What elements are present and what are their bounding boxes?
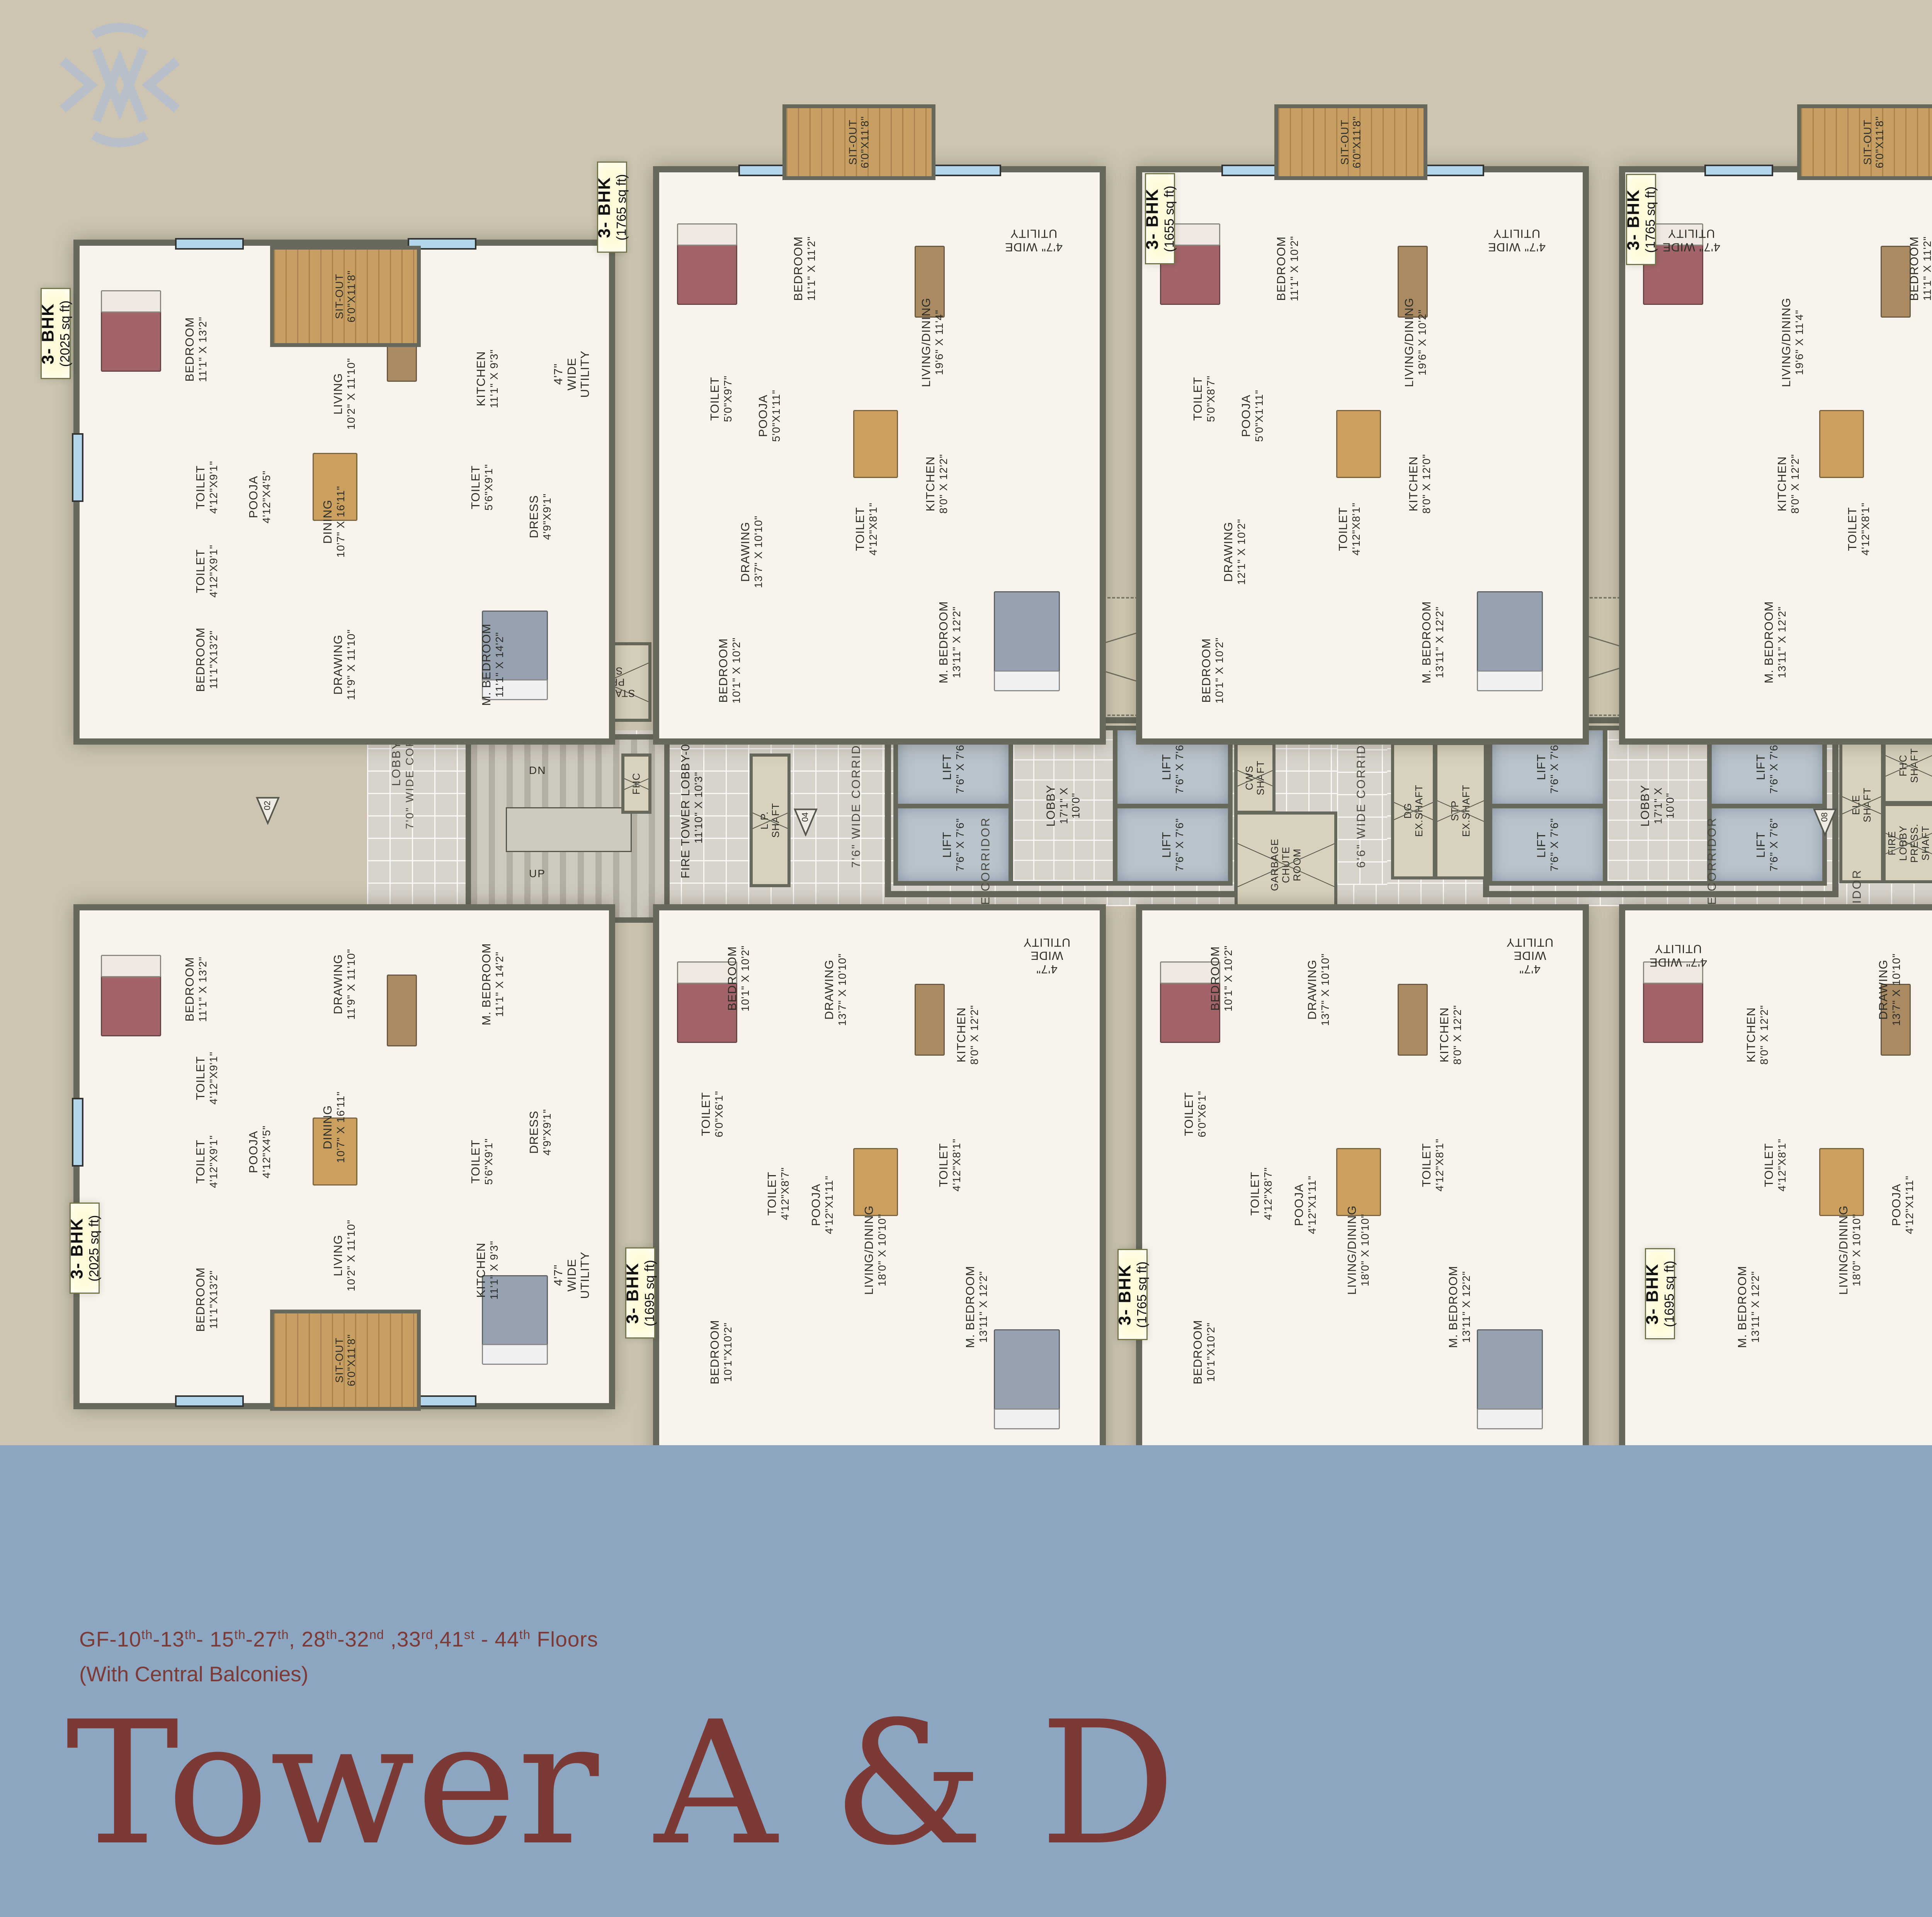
label-room: BEDROOM11'1"X13'2" (194, 1267, 219, 1332)
label-room: 4'7" WIDE UTILITY (552, 1251, 592, 1298)
label-room: TOILET5'6"X9'1" (469, 1138, 495, 1185)
unit-B2: SIT-OUT6'0"X10'8"BEDROOM10'1" X 10'2"DRA… (653, 904, 1106, 1483)
label-room: BEDROOM10'1" X 10'2" (1209, 945, 1234, 1011)
label-room: LIVING/DINING18'0" X 10'10" (1837, 1205, 1862, 1295)
label-room: TOILET5'0"X8'7" (1191, 376, 1217, 422)
label-room: TOILET4'12"X8'1" (937, 1139, 963, 1192)
label-room: POOJA4'12"X1'11" (1293, 1175, 1318, 1234)
label-room: 4'7" WIDE UTILITY (1020, 936, 1073, 976)
label-lift: LIFT7'6" X 7'6" (1160, 740, 1185, 794)
label-room: M. BEDROOM13'11" X 12'2" (1762, 601, 1788, 683)
label-room: TOILET4'12"X9'1" (194, 544, 219, 597)
label-room: KITCHEN8'0" X 12'2" (955, 1005, 980, 1065)
svg-text:04: 04 (800, 812, 810, 822)
master-bed (1477, 1329, 1543, 1415)
label-room: POOJA4'12"X1'11" (810, 1175, 835, 1234)
shaft-stp-ex-shaft: STP EX.SHAFT (1434, 742, 1487, 879)
lift-cell: LIFT7'6" X 7'6" (1488, 804, 1607, 886)
label-room: 4'7" WIDE UTILITY (1488, 227, 1546, 253)
unit-badge-B1: 3- BHK(2025 sq ft) (70, 1203, 100, 1294)
lift-cell: LIFT7'6" X 7'6" (1113, 804, 1233, 886)
unit-B1: SIT-OUT6'0"X11'8"BEDROOM11'1" X 13'2"DRA… (73, 904, 615, 1409)
label-room: DRESS4'9"X9'1" (527, 493, 553, 540)
master-bed (994, 591, 1060, 677)
unit-badge-T2: 3- BHK(1765 sq ft) (597, 162, 627, 253)
label-room: KITCHEN8'0" X 12'2" (1438, 1005, 1463, 1065)
label-room: DRAWING11'9" X 11'10" (332, 629, 357, 700)
brochure-page: CUT-OUTCUT-OUTUPDNUPDNLIFT7'6" X 7'6"LIF… (0, 0, 1932, 1917)
shaft-fhc: FHC (621, 754, 651, 814)
label-shaft: GARBAGE CHUTE ROOM (1269, 839, 1303, 891)
window (72, 433, 83, 502)
label-room: M. BEDROOM13'11" X 12'2" (1420, 601, 1446, 683)
window (175, 238, 244, 250)
label-room: 4'7" WIDE UTILITY (552, 350, 592, 397)
bed-pillow (677, 223, 737, 246)
shaft-ele-shaft: ELE SHAFT (1839, 726, 1884, 883)
label-room: M. BEDROOM11'1" X 14'2" (480, 623, 505, 706)
dining-table (1819, 410, 1864, 478)
label-room: BEDROOM11'1" X 11'2" (792, 236, 817, 301)
svg-text:08: 08 (1820, 812, 1829, 822)
entrance-marker: 04 (793, 808, 818, 839)
floor-plan: CUT-OUTCUT-OUTUPDNUPDNLIFT7'6" X 7'6"LIF… (0, 0, 1932, 1445)
label-room: POOJA5'0"X1'11" (757, 390, 782, 442)
label-sit-out: SIT-OUT6'0"X11'8" (333, 270, 358, 323)
sit-out-balcony: SIT-OUT6'0"X11'8" (270, 1310, 421, 1411)
master-bed-pillow (994, 1408, 1060, 1429)
sofa (387, 975, 417, 1046)
unit-badge-T3: 3- BHK(1655 sq ft) (1145, 173, 1175, 264)
label-room: KITCHEN11'1" X 9'3" (474, 1240, 500, 1300)
label-room: BEDROOM11'1" X 13'2" (183, 316, 209, 382)
shaft-cws-shaft: CWS SHAFT (1235, 742, 1276, 814)
master-bed (1477, 591, 1543, 677)
master-bed-pillow (1477, 670, 1543, 691)
label-room: LIVING/DINING19'6" X 11'4" (1780, 298, 1805, 387)
label-room: LIVING/DINING18'0" X 10'10" (862, 1205, 888, 1295)
label-room: KITCHEN8'0" X 12'2" (1745, 1005, 1770, 1065)
label-lift: LIFT7'6" X 7'6" (1754, 740, 1780, 794)
page-title: Tower A & D (66, 1685, 1177, 1883)
label-room: LIVING/DINING19'6" X 10'2" (1403, 298, 1428, 387)
unit-T4: SIT-OUT6'0"X11'8"BEDROOM11'1" X 11'2"TOI… (1619, 166, 1932, 745)
label-room: BEDROOM10'1"X10'2" (708, 1320, 734, 1384)
entrance-marker: 08 (1813, 808, 1837, 839)
sit-out-balcony: SIT-OUT6'0"X11'8" (782, 104, 935, 180)
lift-lobby: LOBBY17'1" X 10'0" (1603, 726, 1712, 886)
label-room: 4'7" WIDE UTILITY (1649, 942, 1707, 969)
label-room: TOILET4'12"X8'7" (765, 1167, 791, 1220)
label-room: TOILET6'0"X6'1" (1182, 1091, 1208, 1138)
label-lift: LIFT7'6" X 7'6" (1160, 818, 1185, 871)
unit-B3: SIT-OUT6'0"X10'8"BEDROOM10'1" X 10'2"DRA… (1136, 904, 1589, 1483)
label-room: LIVING/DINING18'0" X 10'10" (1345, 1205, 1371, 1295)
sit-out-balcony: SIT-OUT6'0"X11'8" (1274, 104, 1427, 180)
sit-out-balcony: SIT-OUT6'0"X11'8" (270, 246, 421, 347)
label-room: LIVING10'2" X 11'10" (332, 358, 357, 430)
label-lift: LIFT7'6" X 7'6" (1535, 818, 1560, 871)
label-room: M. BEDROOM13'11" X 12'2" (937, 601, 963, 683)
floors-line: GF-10th-13th- 15th-27th, 28th-32nd ,33rd… (79, 1627, 598, 1652)
label-room: DRAWING12'1" X 10'2" (1222, 519, 1247, 585)
dining-table (1336, 410, 1381, 478)
footer-band: GF-10th-13th- 15th-27th, 28th-32nd ,33rd… (0, 1445, 1932, 1917)
unit-badge-B3: 3- BHK(1765 sq ft) (1117, 1249, 1148, 1340)
entrance-marker: 02 (255, 796, 280, 827)
label-sit-out: SIT-OUT6'0"X11'8" (847, 116, 871, 168)
label-room: BEDROOM10'1" X 10'2" (726, 945, 751, 1011)
sofa (1398, 984, 1428, 1056)
stair-up-label: UP (529, 867, 546, 880)
label-shaft: DG EX.SHAFT (1402, 784, 1425, 837)
sofa (915, 984, 945, 1056)
label-room: BEDROOM10'1"X10'2" (1191, 1320, 1217, 1384)
sit-out-balcony: SIT-OUT6'0"X11'8" (1797, 104, 1932, 180)
label-room: TOILET4'12"X8'1" (1420, 1139, 1446, 1192)
bed-pillow (101, 290, 161, 313)
label-room: TOILET4'12"X8'1" (854, 502, 879, 555)
label-room: TOILET4'12"X9'1" (194, 461, 219, 514)
label-room: 4'7" WIDE UTILITY (1005, 227, 1063, 253)
lift-lobby: LOBBY17'1" X 10'0" (1009, 726, 1117, 886)
label-room: M. BEDROOM13'11" X 12'2" (1447, 1266, 1472, 1348)
unit-badge-B4: 3- BHK(1695 sq ft) (1645, 1248, 1675, 1339)
label-room: KITCHEN8'0" X 12'0" (1407, 454, 1432, 514)
label-fire-lobby: FIRE TOWER LOBBY-0211'10" X 10'3" (679, 737, 704, 878)
label-room: POOJA4'12"X4'5" (247, 1125, 272, 1178)
window (72, 1098, 83, 1167)
label-room: M. BEDROOM11'1" X 14'2" (480, 943, 505, 1026)
sofa (1881, 246, 1911, 318)
master-bed (994, 1329, 1060, 1415)
label-room: BEDROOM11'1"X13'2" (194, 627, 219, 692)
label-room: POOJA5'0"X1'11" (1240, 390, 1265, 442)
unit-badge-B2: 3- BHK(1695 sq ft) (625, 1247, 655, 1339)
label-room: DRAWING13'7" X 10'10" (1877, 953, 1902, 1026)
stair-landing (506, 807, 632, 852)
floors-subtitle: (With Central Balconies) (79, 1662, 308, 1686)
window (175, 1395, 244, 1407)
label-room: 4'7" WIDE UTILITY (1503, 936, 1556, 976)
label-shaft: CWS SHAFT (1244, 760, 1266, 795)
label-lift: LIFT7'6" X 7'6" (1535, 740, 1560, 794)
window (932, 165, 1001, 176)
label-room: BEDROOM10'1" X 10'2" (717, 638, 742, 704)
unit-T2: SIT-OUT6'0"X11'8"BEDROOM11'1" X 11'2"TOI… (653, 166, 1106, 745)
label-shaft: FHC SHAFT (1898, 748, 1920, 782)
label-room: DINING10'7" X 16'11" (321, 1091, 347, 1163)
label-room: DRAWING11'9" X 11'10" (332, 949, 357, 1020)
label-sit-out: SIT-OUT6'0"X11'8" (1339, 116, 1363, 168)
label-room: M. BEDROOM13'11" X 12'2" (1736, 1266, 1761, 1348)
label-corridor: 6'6" WIDE CORRIDOR (1354, 724, 1368, 868)
label-lobby: LOBBY17'1" X 10'0" (1638, 781, 1676, 831)
label-room: BEDROOM11'1" X 11'2" (1908, 236, 1932, 301)
label-room: POOJA4'12"X1'11" (1890, 1175, 1915, 1234)
label-room: KITCHEN11'1" X 9'3" (474, 349, 500, 408)
unit-T1: SIT-OUT6'0"X11'8"BEDROOM11'1" X 13'2"LIV… (73, 240, 615, 745)
label-lift: LIFT7'6" X 7'6" (940, 740, 966, 794)
label-room: KITCHEN8'0" X 12'2" (1776, 454, 1801, 514)
label-room: DRESS4'9"X9'1" (527, 1109, 553, 1155)
label-shaft: STP EX.SHAFT (1449, 784, 1472, 837)
label-sit-out: SIT-OUT6'0"X11'8" (1861, 116, 1886, 168)
label-room: TOILET4'12"X8'1" (1762, 1139, 1788, 1192)
label-room: TOILET5'0"X9'7" (708, 376, 734, 422)
shaft-l-p-shaft: L.P. SHAFT (750, 754, 791, 887)
label-shaft: L.P. SHAFT (759, 803, 781, 838)
label-room: TOILET5'6"X9'1" (469, 464, 495, 510)
label-room: TOILET4'12"X8'1" (1846, 502, 1871, 555)
label-room: TOILET4'12"X9'1" (194, 1051, 219, 1104)
label-corridor: 7'6" WIDE CORRIDOR (849, 724, 863, 868)
master-bed-pillow (994, 670, 1060, 691)
unit-T3: SIT-OUT6'0"X11'8"BEDROOM11'1" X 10'2"TOI… (1136, 166, 1589, 745)
label-shaft: ELE SHAFT (1850, 788, 1873, 822)
bed-pillow (101, 955, 161, 977)
master-bed-pillow (482, 1344, 548, 1365)
unit-badge-T1: 3- BHK(2025 sq ft) (41, 288, 71, 379)
label-room: TOILET6'0"X6'1" (699, 1091, 725, 1138)
label-room: KITCHEN8'0" X 12'2" (924, 454, 949, 514)
lift-cell: LIFT7'6" X 7'6" (893, 804, 1013, 886)
lift-cell: LIFT7'6" X 7'6" (1707, 804, 1827, 886)
label-room: DRAWING13'7" X 10'10" (823, 953, 848, 1026)
label-room: DRAWING13'7" X 10'10" (1306, 953, 1331, 1026)
svg-text:02: 02 (262, 801, 272, 810)
dining-table (853, 410, 898, 478)
stair-dn-label: DN (529, 764, 546, 777)
label-lobby: LOBBY17'1" X 10'0" (1044, 781, 1082, 831)
shaft-fire-lobby: FIRE LOBBY PRESS. SHAFT (1883, 803, 1932, 883)
master-bed-pillow (1477, 1408, 1543, 1429)
label-room: TOILET4'12"X8'1" (1337, 502, 1362, 555)
label-sit-out: SIT-OUT6'0"X11'8" (333, 1334, 358, 1386)
unit-B4: SIT-OUT6'0"X10'8"BEDROOM10'1" X 10'2"DRA… (1619, 904, 1932, 1483)
label-shaft: FHC (631, 773, 642, 794)
label-room: LIVING/DINING19'6" X 11'4" (920, 298, 945, 387)
label-room: 4'7" WIDE UTILITY (1662, 227, 1720, 253)
label-room: TOILET4'12"X9'1" (194, 1135, 219, 1188)
label-room: LIVING10'2" X 11'10" (332, 1220, 357, 1291)
label-lift: LIFT7'6" X 7'6" (940, 818, 966, 871)
shaft-garbage: GARBAGE CHUTE ROOM (1235, 811, 1337, 918)
label-room: DRAWING13'7" X 10'10" (739, 515, 764, 588)
label-lift: LIFT7'6" X 7'6" (1754, 818, 1780, 871)
label-room: POOJA4'12"X4'5" (247, 471, 272, 524)
label-room: BEDROOM10'1" X 10'2" (1200, 638, 1225, 704)
label-shaft: FIRE LOBBY PRESS. SHAFT (1886, 823, 1931, 862)
label-room: TOILET4'12"X8'7" (1248, 1167, 1274, 1220)
label-room: M. BEDROOM13'11" X 12'2" (964, 1266, 989, 1348)
label-room: BEDROOM11'1" X 10'2" (1275, 236, 1300, 301)
window (1704, 165, 1773, 176)
shaft-dg-ex-shaft: DG EX.SHAFT (1391, 742, 1436, 879)
label-room: DINING10'7" X 16'11" (321, 486, 347, 558)
label-room: BEDROOM11'1" X 13'2" (183, 956, 209, 1022)
unit-badge-T4: 3- BHK(1765 sq ft) (1626, 174, 1656, 265)
